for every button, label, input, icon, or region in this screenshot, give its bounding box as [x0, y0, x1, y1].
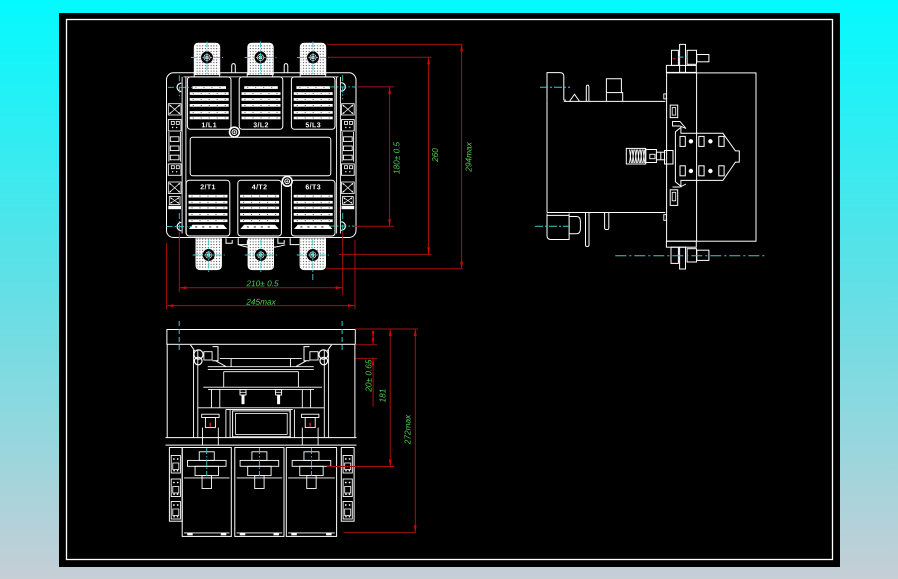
svg-text:3/L2: 3/L2 [253, 122, 269, 129]
svg-text:1/L1: 1/L1 [201, 122, 217, 129]
svg-text:260: 260 [430, 148, 440, 163]
svg-text:20± 0.65: 20± 0.65 [364, 359, 374, 393]
svg-text:294max: 294max [463, 141, 473, 172]
svg-text:4/T2: 4/T2 [252, 184, 268, 191]
svg-text:2/T1: 2/T1 [200, 184, 216, 191]
svg-text:181: 181 [378, 389, 388, 403]
svg-text:5/L3: 5/L3 [305, 122, 321, 129]
svg-text:210± 0.5: 210± 0.5 [245, 278, 279, 288]
svg-text:272max: 272max [402, 414, 412, 445]
svg-text:180± 0.5: 180± 0.5 [392, 142, 402, 175]
svg-text:6/T3: 6/T3 [305, 184, 321, 191]
svg-text:245max: 245max [245, 297, 276, 307]
